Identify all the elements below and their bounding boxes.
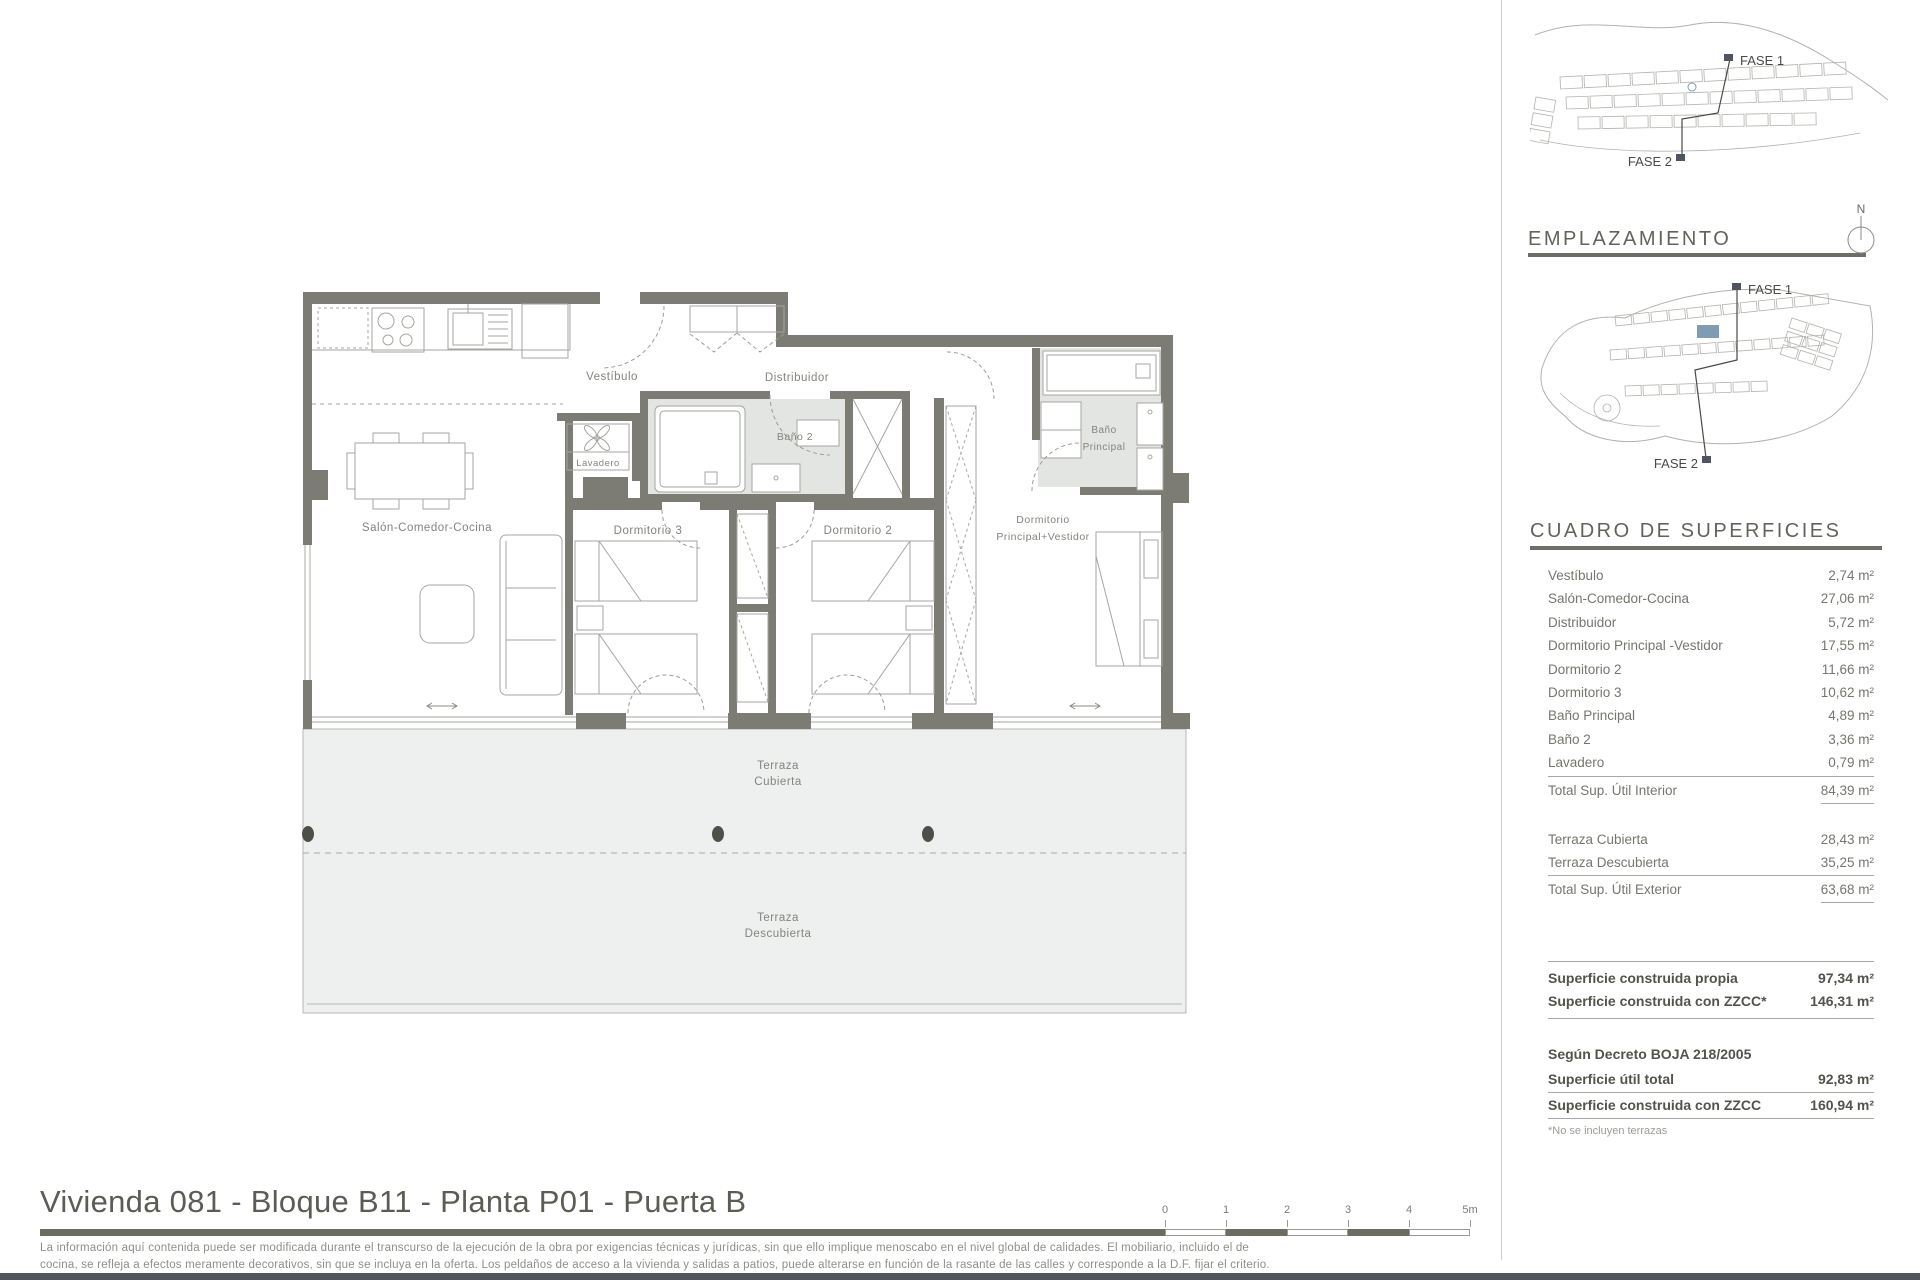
table-row: Dormitorio Principal -Vestidor 17,55 m² xyxy=(1548,634,1874,657)
kitchen-counter xyxy=(312,304,570,404)
page-bottom-border xyxy=(0,1273,1920,1280)
row-value: 17,55 m² xyxy=(1821,634,1874,657)
room-label-vestibulo: Vestíbulo xyxy=(586,371,638,383)
bedroom2-door-swing xyxy=(776,510,814,548)
room-label-banoppal: Baño xyxy=(1091,425,1116,436)
emplazamiento-rule xyxy=(1528,253,1866,257)
svg-text:Principal: Principal xyxy=(1083,442,1126,453)
fase1-marker xyxy=(1732,283,1741,290)
fase2-marker xyxy=(1676,154,1685,161)
row-label: Total Sup. Útil Interior xyxy=(1548,777,1677,804)
emplazamiento-plan: FASE 1 FASE 2 xyxy=(1530,268,1890,480)
terrace-column xyxy=(302,826,314,842)
fase1-label: FASE 1 xyxy=(1748,282,1792,297)
terrace-column xyxy=(922,826,934,842)
table-row: Dormitorio 2 11,66 m² xyxy=(1548,658,1874,681)
built-surface-block: Superficie construida propia 97,34 m² Su… xyxy=(1548,961,1874,1019)
cooktop xyxy=(372,308,424,352)
row-value: 28,43 m² xyxy=(1821,828,1874,851)
fan-icon xyxy=(583,424,612,453)
phase-boundary xyxy=(1682,59,1730,157)
sliding-arrow-icon xyxy=(427,703,1100,709)
row-label: Superficie construida propia xyxy=(1548,967,1738,990)
table-row: Superficie útil total 92,83 m² xyxy=(1548,1067,1874,1093)
table-row: Superficie construida con ZZCC 160,94 m² xyxy=(1548,1093,1874,1119)
scale-label: 3 xyxy=(1345,1204,1351,1216)
sheet-title: Vivienda 081 - Bloque B11 - Planta P01 -… xyxy=(40,1184,746,1220)
row-label: Distribuidor xyxy=(1548,611,1616,634)
svg-text:Descubierta: Descubierta xyxy=(745,928,812,940)
row-value: 97,34 m² xyxy=(1818,967,1874,990)
coffee-table xyxy=(420,585,474,643)
fase1-marker xyxy=(1724,54,1733,61)
svg-text:Cubierta: Cubierta xyxy=(754,776,802,788)
row-label: Total Sup. Útil Exterior xyxy=(1548,876,1682,903)
table-row: Salón-Comedor-Cocina 27,06 m² xyxy=(1548,587,1874,610)
scale-label: 1 xyxy=(1223,1204,1229,1216)
fase1-label: FASE 1 xyxy=(1740,53,1784,68)
row-label: Salón-Comedor-Cocina xyxy=(1548,587,1689,610)
room-label-terraza-cubierta: Terraza xyxy=(757,760,799,772)
building-units xyxy=(1560,294,1841,427)
row-value: 92,83 m² xyxy=(1818,1067,1874,1092)
fase2-label: FASE 2 xyxy=(1654,456,1698,471)
cuadro-title: CUADRO DE SUPERFICIES xyxy=(1530,520,1841,543)
row-label: Vestíbulo xyxy=(1548,564,1604,587)
decreto-heading: Según Decreto BOJA 218/2005 xyxy=(1548,1041,1874,1067)
scale-label: 5m xyxy=(1462,1204,1477,1216)
highlighted-building xyxy=(1697,325,1719,338)
row-value: 35,25 m² xyxy=(1821,851,1874,874)
row-label: Superficie construida con ZZCC* xyxy=(1548,990,1767,1013)
table-row: Lavadero 0,79 m² xyxy=(1548,751,1874,774)
terrace-area xyxy=(302,729,1186,1013)
row-label: Dormitorio 2 xyxy=(1548,658,1622,681)
hall-closet xyxy=(690,306,784,332)
table-row: Terraza Descubierta 35,25 m² xyxy=(1548,851,1874,874)
svg-text:N: N xyxy=(1857,202,1866,216)
site-overview-sketch: FASE 1 FASE 2 xyxy=(1530,5,1890,175)
row-label: Superficie construida con ZZCC xyxy=(1548,1093,1761,1118)
title-rule xyxy=(40,1229,1166,1236)
unit-marker xyxy=(1688,83,1696,91)
floor-plan-drawing: Vestíbulo Distribuidor Baño 2 Lavadero S… xyxy=(0,0,1501,1180)
fase2-label: FASE 2 xyxy=(1628,154,1672,169)
bedroom3-beds xyxy=(575,541,697,694)
fase2-marker xyxy=(1702,456,1711,463)
exterior-total-row: Total Sup. Útil Exterior 63,68 m² xyxy=(1548,876,1874,903)
row-value: 63,68 m² xyxy=(1821,878,1874,903)
row-label: Baño 2 xyxy=(1548,728,1591,751)
row-value: 160,94 m² xyxy=(1810,1093,1874,1118)
room-label-salon: Salón-Comedor-Cocina xyxy=(362,522,492,534)
table-row: Superficie construida con ZZCC* 146,31 m… xyxy=(1548,990,1874,1013)
emplazamiento-title: EMPLAZAMIENTO xyxy=(1528,228,1731,251)
row-value: 10,62 m² xyxy=(1821,681,1874,704)
master-door-swing xyxy=(947,352,994,399)
interior-total-row: Total Sup. Útil Interior 84,39 m² xyxy=(1548,777,1874,804)
row-value: 11,66 m² xyxy=(1822,658,1874,681)
table-row: Superficie construida propia 97,34 m² xyxy=(1548,967,1874,990)
row-label: Baño Principal xyxy=(1548,704,1635,727)
scale-label: 0 xyxy=(1162,1204,1168,1216)
row-value: 2,74 m² xyxy=(1828,564,1874,587)
room-label-distribuidor: Distribuidor xyxy=(765,372,829,384)
dining-table xyxy=(347,433,473,509)
row-label: Superficie útil total xyxy=(1548,1067,1674,1092)
table-row: Dormitorio 3 10,62 m² xyxy=(1548,681,1874,704)
table-row: Baño 2 3,36 m² xyxy=(1548,728,1874,751)
scale-label: 4 xyxy=(1406,1204,1412,1216)
room-label-lavadero: Lavadero xyxy=(576,458,620,469)
floorplan-sheet: { "plan": { "labels": { "vestibulo": "Ve… xyxy=(0,0,1920,1280)
row-label: Dormitorio Principal -Vestidor xyxy=(1548,634,1723,657)
terrace-column xyxy=(712,826,724,842)
row-value: 3,36 m² xyxy=(1828,728,1874,751)
table-row: Terraza Cubierta 28,43 m² xyxy=(1548,828,1874,851)
row-value: 0,79 m² xyxy=(1828,751,1874,774)
room-label-dormppal: Dormitorio xyxy=(1016,514,1069,526)
room-label-bano2: Baño 2 xyxy=(777,431,813,443)
shaft xyxy=(853,399,902,494)
cuadro-rule xyxy=(1530,546,1882,550)
master-bed xyxy=(1096,532,1162,666)
row-value: 4,89 m² xyxy=(1828,704,1874,727)
svg-text:Principal+Vestidor: Principal+Vestidor xyxy=(996,531,1089,543)
row-label: Dormitorio 3 xyxy=(1548,681,1622,704)
entrance-door-swing xyxy=(602,306,664,368)
table-row: Baño Principal 4,89 m² xyxy=(1548,704,1874,727)
row-label: Terraza Cubierta xyxy=(1548,828,1648,851)
table-footnote: *No se incluyen terrazas xyxy=(1548,1125,1874,1137)
table-row: Distribuidor 5,72 m² xyxy=(1548,611,1874,634)
sofa xyxy=(500,535,562,695)
row-value: 5,72 m² xyxy=(1828,611,1874,634)
building-cluster xyxy=(1530,62,1860,151)
table-row: Vestíbulo 2,74 m² xyxy=(1548,564,1874,587)
room-label-dorm2: Dormitorio 2 xyxy=(824,525,893,537)
north-arrow-icon: N xyxy=(1842,200,1882,258)
bedroom2-beds xyxy=(812,541,934,694)
surfaces-table: Vestíbulo 2,74 m² Salón-Comedor-Cocina 2… xyxy=(1548,564,1874,1137)
sidebar-divider xyxy=(1501,0,1502,1260)
scale-label: 2 xyxy=(1284,1204,1290,1216)
row-value: 27,06 m² xyxy=(1821,587,1874,610)
row-value: 146,31 m² xyxy=(1810,990,1874,1013)
room-label-terraza-descubierta: Terraza xyxy=(757,912,799,924)
row-label: Lavadero xyxy=(1548,751,1604,774)
row-value: 84,39 m² xyxy=(1821,779,1874,804)
row-label: Terraza Descubierta xyxy=(1548,851,1669,874)
room-label-dorm3: Dormitorio 3 xyxy=(614,525,683,537)
disclaimer-text: La información aquí contenida puede ser … xyxy=(40,1240,1500,1274)
